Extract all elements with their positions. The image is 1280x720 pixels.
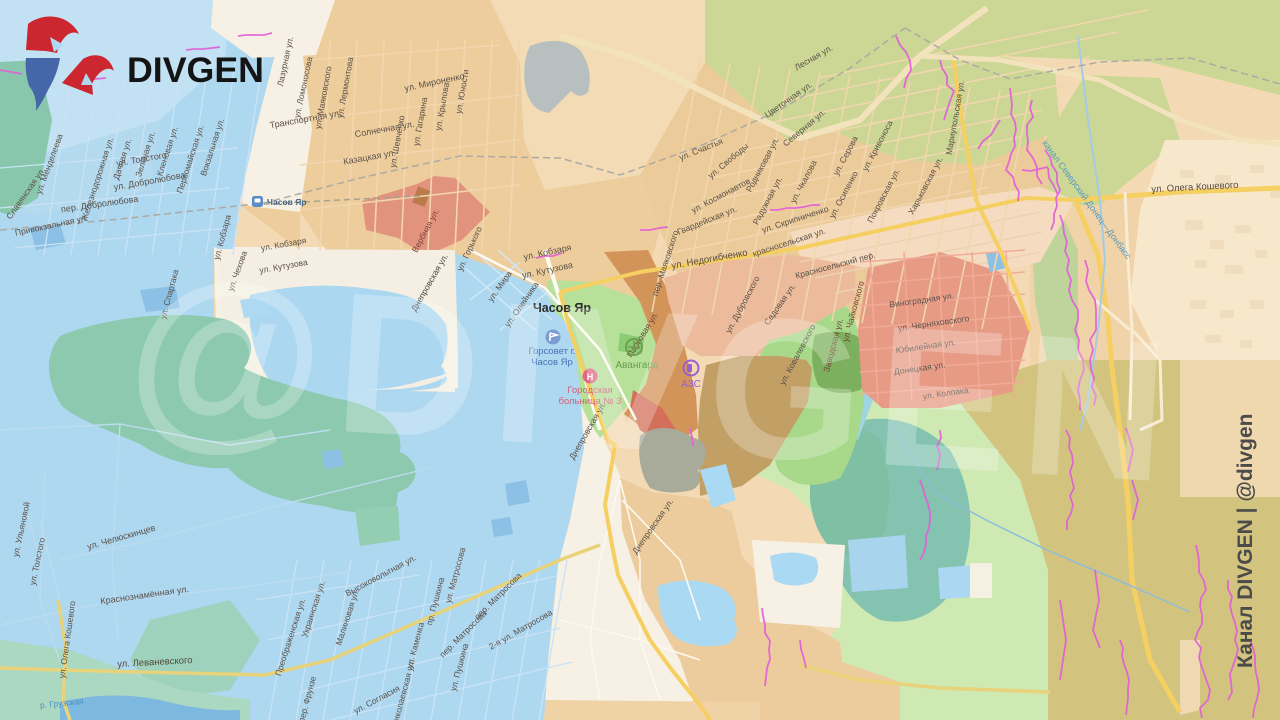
- svg-text:Канал DIVGEN | @divgen: Канал DIVGEN | @divgen: [1234, 413, 1257, 668]
- svg-text:DIVGEN: DIVGEN: [127, 51, 264, 90]
- svg-text:Часов Яр: Часов Яр: [267, 197, 307, 207]
